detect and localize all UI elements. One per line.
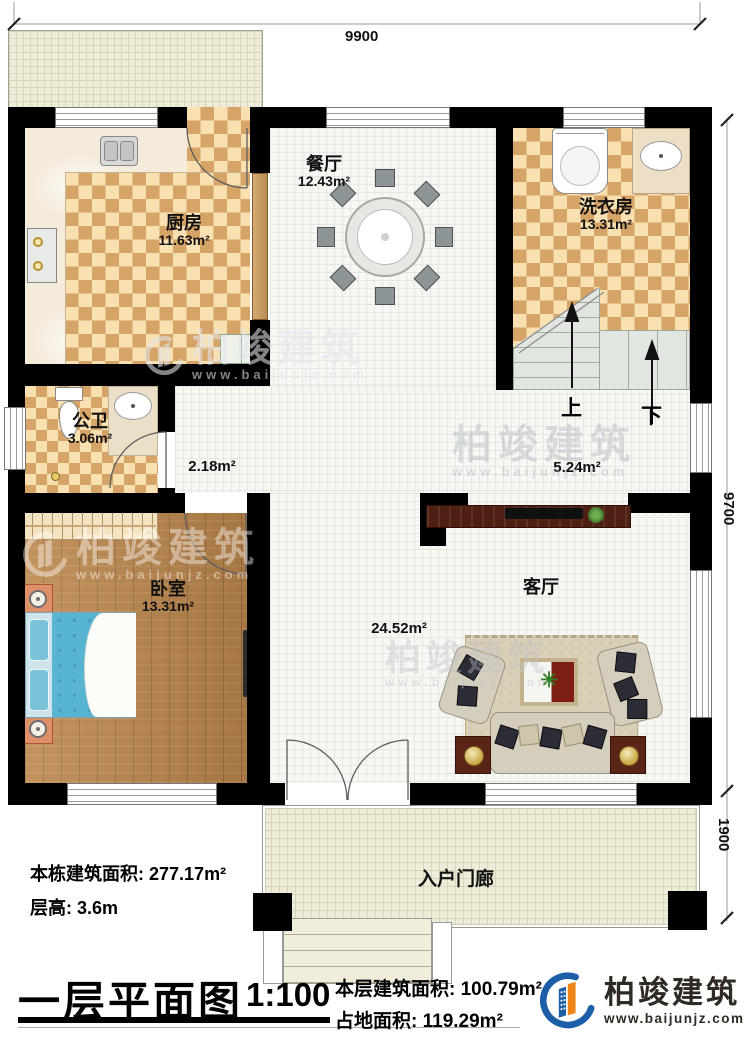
sofa-cushion xyxy=(583,725,608,750)
room-label-laundry: 洗衣房 13.31m² xyxy=(579,198,633,232)
room-area: 13.31m² xyxy=(579,217,633,232)
window xyxy=(55,107,158,128)
end-table-left xyxy=(455,736,491,774)
building-area-label: 本栋建筑面积: xyxy=(30,864,144,884)
wall xyxy=(8,493,185,513)
toilet-tank xyxy=(55,387,83,401)
wall xyxy=(496,128,513,390)
nightstand-top xyxy=(23,584,53,614)
dining-table-center xyxy=(381,233,389,241)
dim-tick xyxy=(694,18,706,30)
porch-column xyxy=(253,893,292,931)
sofa-cushion xyxy=(494,724,519,749)
living-area-label: 24.52m² xyxy=(371,620,427,637)
tv xyxy=(505,508,583,519)
room-name: 餐厅 xyxy=(298,155,350,174)
room-name: 公卫 xyxy=(68,412,112,431)
floor-plan-page: ✳ xyxy=(0,0,750,1041)
sofa-cushion xyxy=(518,724,540,746)
wall xyxy=(8,364,270,386)
lamp-icon xyxy=(29,590,47,608)
room-area: 12.43m² xyxy=(298,174,350,189)
footprint-line: 占地面积: 119.29m² xyxy=(335,1006,503,1033)
wall xyxy=(8,470,25,805)
kitchen-tall-cabinet xyxy=(252,173,268,320)
room-name: 厨房 xyxy=(158,214,209,233)
room-area: 3.06m² xyxy=(68,431,112,446)
room-label-bathroom: 公卫 3.06m² xyxy=(68,412,112,446)
dining-chair xyxy=(375,287,395,305)
sofa-cushion xyxy=(539,726,562,749)
sofa-cushion xyxy=(457,685,478,706)
wall xyxy=(270,107,326,128)
wall xyxy=(8,107,25,407)
stair-hall-area-label: 5.24m² xyxy=(553,459,601,476)
coffee-table-plant: ✳ xyxy=(538,670,560,692)
dim-right-lower: 1900 xyxy=(715,818,732,851)
washing-machine-drum xyxy=(560,146,600,186)
building-area-value: 277.17m² xyxy=(149,864,226,884)
entry-steps-left-cheek xyxy=(263,922,283,984)
sofa-main xyxy=(490,712,615,774)
wall xyxy=(628,493,690,513)
brand-website: www.baijunjz.com xyxy=(604,1012,745,1026)
sofa-cushion xyxy=(627,699,647,719)
lamp-icon xyxy=(619,746,639,766)
dim-tick xyxy=(721,912,733,924)
floor-height-line: 层高: 3.6m xyxy=(30,894,118,920)
wall xyxy=(410,783,485,805)
brand-logo-icon xyxy=(536,968,596,1034)
washing-machine-panel xyxy=(556,133,604,134)
floor-height-label: 层高: xyxy=(30,898,72,918)
dining-chair xyxy=(375,169,395,187)
room-label-living: 客厅 xyxy=(523,578,559,597)
room-name: 卧室 xyxy=(142,580,194,599)
room-label-dining: 餐厅 12.43m² xyxy=(298,155,350,189)
bed-blanket xyxy=(84,613,136,717)
floor-area-line: 本层建筑面积: 100.79m² xyxy=(335,974,542,1001)
floor-area-value: 100.79m² xyxy=(461,979,542,1000)
kitchen-counter-edge xyxy=(65,172,250,173)
bath-sink-drain xyxy=(131,404,135,408)
window xyxy=(690,403,712,473)
bed-pillow xyxy=(29,669,49,711)
kitchen-sink-basin-left xyxy=(104,141,118,161)
wall xyxy=(250,320,270,364)
footprint-value: 119.29m² xyxy=(423,1011,503,1032)
room-name: 洗衣房 xyxy=(579,198,633,217)
wall xyxy=(217,783,285,805)
room-area: 13.31m² xyxy=(142,599,194,614)
kitchen-entry-floor xyxy=(187,107,250,173)
dim-tick xyxy=(721,785,733,797)
terrace-floor xyxy=(8,30,263,113)
window xyxy=(4,407,26,470)
window xyxy=(67,783,217,805)
wall xyxy=(637,783,712,805)
sofa-cushion xyxy=(457,654,484,681)
stairs-up-label: 上 xyxy=(561,392,582,422)
wall xyxy=(250,107,270,173)
wall xyxy=(690,473,712,570)
dim-right: 9700 xyxy=(720,492,737,525)
lamp-icon xyxy=(29,720,47,738)
window xyxy=(485,783,637,805)
floor-area-label: 本层建筑面积: xyxy=(335,979,455,1000)
corridor-area-label: 2.18m² xyxy=(188,458,236,475)
tv-cabinet-plant xyxy=(588,507,604,523)
stove-burner-1 xyxy=(33,237,43,247)
room-label-porch: 入户门廊 xyxy=(418,870,494,890)
floor-height-value: 3.6m xyxy=(77,898,118,918)
wall xyxy=(247,513,270,783)
room-name: 客厅 xyxy=(523,578,559,597)
porch-column xyxy=(668,891,707,930)
wall xyxy=(450,107,563,128)
dining-chair xyxy=(317,227,335,247)
porch-floor xyxy=(262,805,700,928)
bed xyxy=(25,612,135,718)
dining-chair xyxy=(435,227,453,247)
kitchen-sink-basin-right xyxy=(120,141,134,161)
kitchen-counter-edge2 xyxy=(65,172,66,364)
brand-name: 柏竣建筑 xyxy=(604,977,745,1008)
stairs-down-label: 下 xyxy=(641,400,662,430)
stove xyxy=(27,228,57,283)
footprint-label: 占地面积: xyxy=(335,1011,417,1032)
hall-floor xyxy=(175,386,690,493)
floor-drain xyxy=(51,472,60,481)
laundry-sink-drain xyxy=(659,154,663,158)
building-area-line: 本栋建筑面积: 277.17m² xyxy=(30,860,226,886)
scale-label: 1:100 xyxy=(246,976,330,1014)
stair-landing xyxy=(600,330,690,390)
wardrobe-rod xyxy=(24,525,156,527)
room-area: 11.63m² xyxy=(158,233,209,248)
brand-logo: 柏竣建筑 www.baijunjz.com xyxy=(536,968,745,1034)
wall xyxy=(158,386,175,432)
wall xyxy=(158,107,187,128)
window xyxy=(563,107,645,128)
wall xyxy=(8,783,67,805)
wall xyxy=(247,493,270,513)
stove-burner-2 xyxy=(33,261,43,271)
room-label-bedroom: 卧室 13.31m² xyxy=(142,580,194,614)
window xyxy=(690,570,712,718)
window xyxy=(326,107,450,128)
room-name: 入户门廊 xyxy=(418,870,494,890)
bed-pillow xyxy=(29,619,49,661)
sofa-cushion xyxy=(615,651,637,673)
wall xyxy=(690,107,712,403)
room-label-kitchen: 厨房 11.63m² xyxy=(158,214,209,248)
fridge-divider xyxy=(241,335,242,363)
dim-tick xyxy=(8,18,20,30)
dim-top: 9900 xyxy=(345,28,378,45)
sofa-cushion xyxy=(561,723,585,747)
dim-tick xyxy=(721,114,733,126)
nightstand-bottom xyxy=(23,714,53,744)
end-table-right xyxy=(610,736,646,774)
title-underline-thick xyxy=(18,1017,330,1023)
lamp-icon xyxy=(464,746,484,766)
